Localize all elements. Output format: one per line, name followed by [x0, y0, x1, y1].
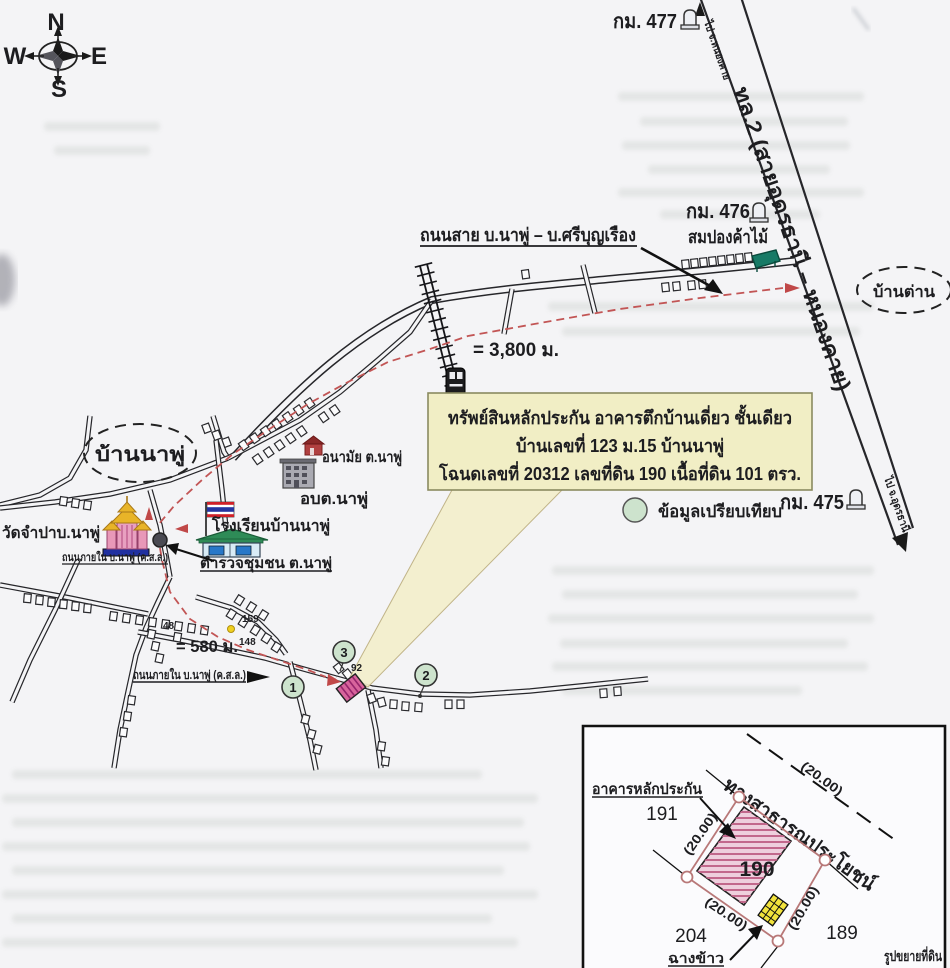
ghost-text-bar	[12, 914, 492, 923]
house-marker	[313, 744, 322, 754]
house-marker	[307, 729, 316, 739]
compass-east-label: E	[91, 43, 107, 70]
house-marker	[673, 282, 681, 291]
compass-north-label: N	[47, 9, 64, 36]
house-marker	[119, 728, 127, 737]
house-marker	[390, 700, 398, 709]
house-marker	[662, 283, 670, 292]
inset-title: รูปขยายที่ดิน	[884, 946, 942, 965]
house-marker	[415, 703, 423, 712]
parcel-190-label: 190	[739, 858, 774, 881]
comparison-point-1-label: 1	[289, 680, 296, 695]
house-marker	[60, 600, 68, 609]
house-marker	[445, 700, 452, 709]
comparison-point-3-label: 3	[340, 645, 347, 660]
map-canvas: N W E S ทล.2 (สายอุดรธานี – หนองคาย) ไป …	[0, 0, 950, 968]
distance-village-label: = 580 ม.	[176, 637, 238, 656]
collateral-building-label: อาคารหลักประกัน	[592, 781, 703, 798]
health-center-label: อนามัย ต.นาพู่	[322, 449, 402, 467]
yellow-dot-marker	[228, 626, 235, 633]
ghost-text-bar	[648, 165, 830, 174]
parcel-189-label: 189	[826, 923, 858, 944]
house-marker	[688, 281, 696, 290]
land-plot-inset: (20.00) ทางสาธารณประโยชน์	[583, 726, 945, 968]
house-marker	[174, 622, 182, 631]
ghost-text-bar	[618, 188, 864, 197]
house-marker	[402, 702, 410, 711]
ghost-text-bar	[2, 938, 518, 947]
house-number-159: 159	[242, 614, 259, 625]
ghost-text-bar	[562, 590, 858, 599]
house-marker	[24, 594, 32, 603]
ghost-text-bar	[622, 141, 850, 150]
village-road-upper-label: ถนนภายใน บ.นาพู่ (ค.ส.ล.)	[62, 550, 168, 565]
info-line-2: บ้านเลขที่ 123 ม.15 บ้านนาพู่	[516, 433, 724, 458]
village-oval-label: บ้านนาพู่	[95, 443, 185, 468]
house-marker	[83, 501, 91, 510]
sao-label: อบต.นาพู่	[300, 491, 368, 510]
house-marker	[377, 697, 386, 707]
km477-label: กม. 477	[613, 11, 677, 33]
sao-building-icon	[280, 459, 316, 488]
ghost-text-bar	[44, 122, 160, 131]
km475-label: กม. 475	[780, 492, 844, 514]
ghost-text-bar	[2, 842, 530, 851]
house-marker	[151, 641, 160, 651]
house-marker	[718, 256, 726, 265]
house-marker	[700, 258, 708, 267]
house-marker	[48, 598, 56, 607]
ghost-text-bar	[12, 818, 524, 827]
ghost-text-bar	[12, 770, 482, 779]
house-marker	[614, 687, 622, 696]
house-marker	[71, 499, 79, 508]
wood-shop-label: สมปองค้าไม้	[688, 226, 768, 247]
ghost-text-bar	[552, 566, 874, 575]
house-marker	[155, 653, 164, 663]
house-marker	[600, 689, 608, 698]
house-marker	[709, 257, 717, 266]
ghost-text-bar	[54, 146, 150, 155]
junction-circle	[153, 533, 167, 547]
ghost-text-bar	[2, 890, 538, 899]
ghost-text-bar	[2, 794, 538, 803]
house-number-92: 92	[351, 663, 363, 674]
village-road-lower-label: ถนนภายใน บ.นาพู่ (ค.ส.ล.)	[133, 667, 246, 683]
ghost-text-bar	[12, 866, 504, 875]
comparison-point-2-label: 2	[422, 668, 429, 683]
house-marker	[148, 618, 156, 627]
house-number-148: 148	[239, 637, 256, 648]
parcel-191-label: 191	[646, 804, 678, 825]
info-line-3: โฉนดเลขที่ 20312 เลขที่ดิน 190 เนื้อที่ด…	[438, 460, 801, 484]
comparison-legend-label: ข้อมูลเปรียบเทียบ	[658, 501, 782, 523]
parcel-204-label: 204	[675, 926, 707, 947]
house-marker	[381, 757, 389, 766]
compass-south-label: S	[51, 76, 67, 103]
property-info-box: ทรัพย์สินหลักประกัน อาคารตึกบ้านเดี่ยว ช…	[428, 393, 812, 490]
house-marker	[301, 714, 310, 724]
ghost-text-bar	[548, 614, 874, 623]
thai-flag-icon	[207, 502, 234, 517]
house-marker	[122, 614, 130, 623]
ghost-text-bar	[552, 662, 868, 671]
bandan-oval-label: บ้านต่าน	[873, 283, 935, 301]
house-marker	[127, 696, 135, 705]
main-road-label: ถนนสาย บ.นาพู่ – บ.ศรีบุญเรือง	[420, 225, 636, 247]
km476-label: กม. 476	[686, 201, 750, 223]
house-marker	[135, 616, 143, 625]
house-marker	[521, 270, 529, 279]
house-marker	[36, 596, 44, 605]
house-marker	[123, 712, 131, 721]
info-line-1: ทรัพย์สินหลักประกัน อาคารตึกบ้านเดี่ยว ช…	[448, 404, 792, 428]
comparison-point-1: 1	[282, 676, 304, 698]
house-marker	[377, 742, 385, 751]
distance-to-highway-label: = 3,800 ม.	[473, 340, 559, 361]
house-marker	[457, 700, 464, 709]
house-number-48: 48	[163, 621, 175, 632]
house-marker	[736, 254, 744, 263]
temple-label: วัดจำปาบ.นาพู่	[2, 524, 100, 544]
house-marker	[682, 260, 690, 269]
house-marker	[727, 255, 735, 264]
ghost-text-bar	[562, 686, 802, 695]
train-icon	[446, 368, 465, 396]
house-marker	[745, 253, 753, 262]
house-marker	[691, 259, 699, 268]
house-marker	[147, 629, 156, 639]
house-marker	[187, 624, 195, 633]
compass-west-label: W	[4, 43, 27, 70]
comparison-legend-circle	[623, 498, 647, 522]
house-marker	[59, 497, 67, 506]
scanned-map-page: N W E S ทล.2 (สายอุดรธานี – หนองคาย) ไป …	[0, 0, 950, 968]
ghost-text-bar	[560, 639, 848, 648]
rice-barn-label: ฉางข้าว	[668, 950, 724, 966]
house-marker	[72, 602, 80, 611]
house-marker	[109, 612, 117, 621]
house-marker	[84, 604, 92, 613]
school-label: โรงเรียนบ้านนาพู่	[211, 515, 330, 537]
